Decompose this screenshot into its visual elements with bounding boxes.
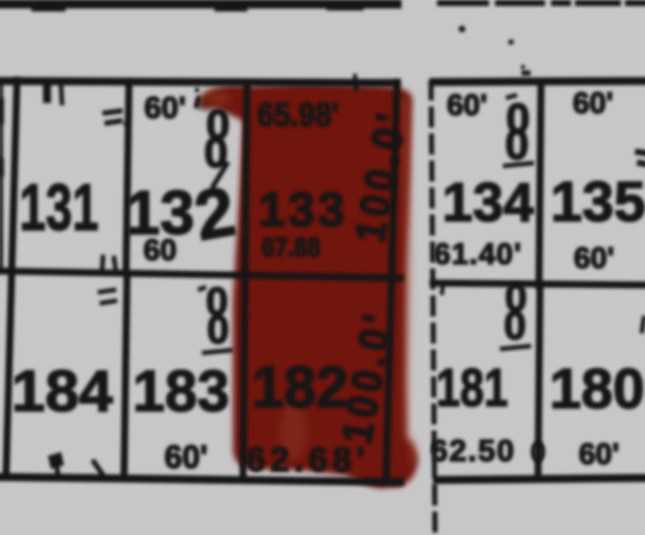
svg-text:181: 181 [436, 359, 508, 419]
svg-text:0: 0 [530, 437, 545, 467]
svg-text:0: 0 [504, 304, 526, 348]
svg-text:62.50: 62.50 [430, 433, 515, 468]
svg-text:61.40': 61.40' [434, 238, 522, 271]
svg-text:184: 184 [11, 358, 113, 423]
svg-text:60': 60' [447, 89, 488, 122]
svg-text:67.88: 67.88 [262, 234, 321, 262]
svg-text:135: 135 [550, 170, 645, 234]
svg-text:180: 180 [549, 357, 644, 421]
svg-text:0: 0 [207, 308, 229, 352]
svg-text:60': 60' [573, 87, 614, 120]
svg-text:60': 60' [164, 439, 207, 475]
svg-text:182: 182 [252, 355, 349, 420]
svg-text:60: 60 [143, 234, 176, 267]
svg-text:131: 131 [19, 171, 98, 244]
svg-text:65.98': 65.98' [257, 97, 338, 134]
svg-text:60': 60' [144, 90, 186, 125]
svg-text:60': 60' [579, 438, 620, 471]
svg-text:60': 60' [574, 242, 615, 275]
svg-text:183: 183 [133, 359, 230, 424]
svg-text:133: 133 [258, 184, 347, 237]
svg-text:62.68': 62.68' [246, 441, 369, 479]
svg-text:134: 134 [442, 171, 534, 233]
